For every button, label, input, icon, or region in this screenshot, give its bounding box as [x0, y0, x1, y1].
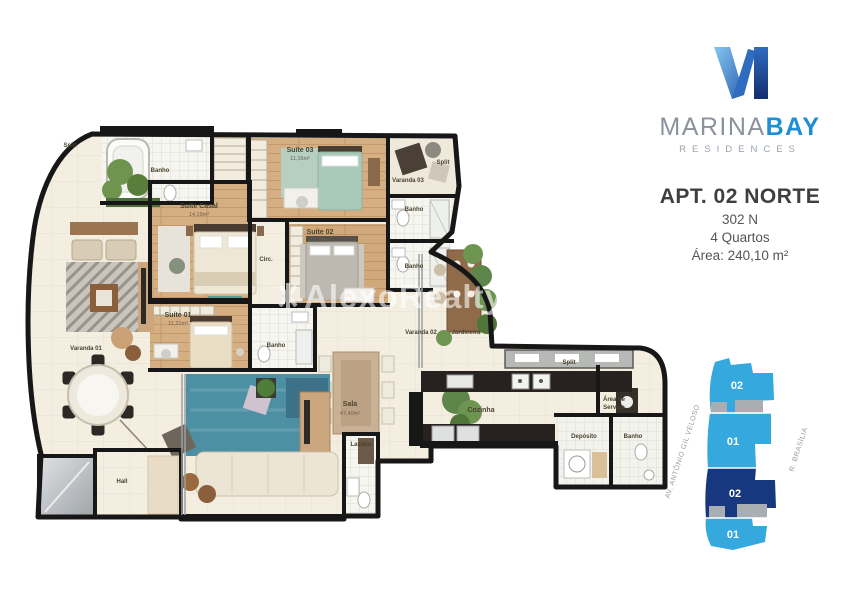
label-banho-suite01: Banho — [267, 343, 286, 349]
label-suite-03-area: 11,16m² — [290, 156, 310, 162]
label-banho-suite02: Banho — [405, 264, 424, 270]
brand-name-gray: MARINA — [659, 113, 765, 141]
label-suite-03: Suíte 03 — [287, 147, 314, 154]
label-split-top-right: Split — [437, 160, 450, 166]
label-jardineira: Jardineira — [452, 330, 481, 336]
watermark: AlexoRealty — [280, 278, 504, 315]
label-suite-01-area: 11,21m² — [168, 321, 188, 327]
apartment-bedrooms: 4 Quartos — [630, 230, 848, 245]
label-varanda-02: Varanda 02 — [405, 330, 437, 336]
brand-subtitle: RESIDENCES — [630, 144, 848, 155]
label-area-servico-1: Área de — [603, 396, 626, 403]
label-split-kitchen: Split — [563, 360, 576, 366]
label-area-servico-2: Serviço — [603, 405, 625, 411]
label-sala: Sala — [343, 401, 358, 408]
keyplan-unit-2 — [707, 413, 771, 468]
brand-name-blue: BAY — [766, 113, 821, 141]
apartment-unit-number: 302 N — [630, 212, 848, 227]
keyplan: 02 01 02 01 — [695, 356, 787, 556]
label-banho-suite03: Banho — [405, 207, 424, 213]
furniture-living — [162, 374, 338, 503]
apartment-area: Área: 240,10 m² — [630, 248, 848, 263]
label-suite-01: Suíte 01 — [165, 312, 192, 319]
elevator-shaft — [39, 456, 95, 517]
label-varanda-01: Varanda 01 — [70, 346, 102, 352]
label-suite-casal-area: 14,19m² — [189, 212, 209, 218]
info-panel: MARINABAY RESIDENCES APT. 02 NORTE 302 N… — [630, 40, 848, 263]
label-lavabo: Lavabo — [350, 442, 371, 448]
label-suite-casal: Suíte Casal — [180, 203, 218, 210]
label-cozinha: Cozinha — [467, 407, 494, 414]
label-deposito: Depósito — [571, 434, 597, 440]
watermark-text: AlexoRealty — [304, 278, 504, 315]
keyplan-unit-label-1: 02 — [731, 380, 743, 392]
label-suite-02-area: 10,10m² — [310, 238, 330, 244]
label-split-top-left: Split — [64, 143, 77, 149]
label-banho-casal: Banho — [151, 168, 170, 174]
label-suite-02: Suíte 02 — [307, 229, 334, 236]
label-circ: Circ. — [259, 257, 273, 263]
label-banho-servico: Banho — [624, 434, 643, 440]
floorplan-page: Split Banho Suíte Casal 14,19m² Suíte 03… — [0, 0, 848, 600]
label-hall: Hall — [116, 479, 127, 485]
label-sala-area: 47,40m² — [340, 411, 360, 417]
keyplan-unit-label-4: 01 — [727, 529, 739, 541]
label-varanda-03: Varanda 03 — [392, 178, 424, 184]
brand-name: MARINABAY — [630, 113, 848, 142]
apartment-title: APT. 02 NORTE — [630, 185, 848, 209]
keyplan-unit-label-3: 02 — [729, 488, 741, 500]
marina-bay-logo-mark — [708, 40, 772, 102]
keyplan-unit-label-2: 01 — [727, 436, 739, 448]
